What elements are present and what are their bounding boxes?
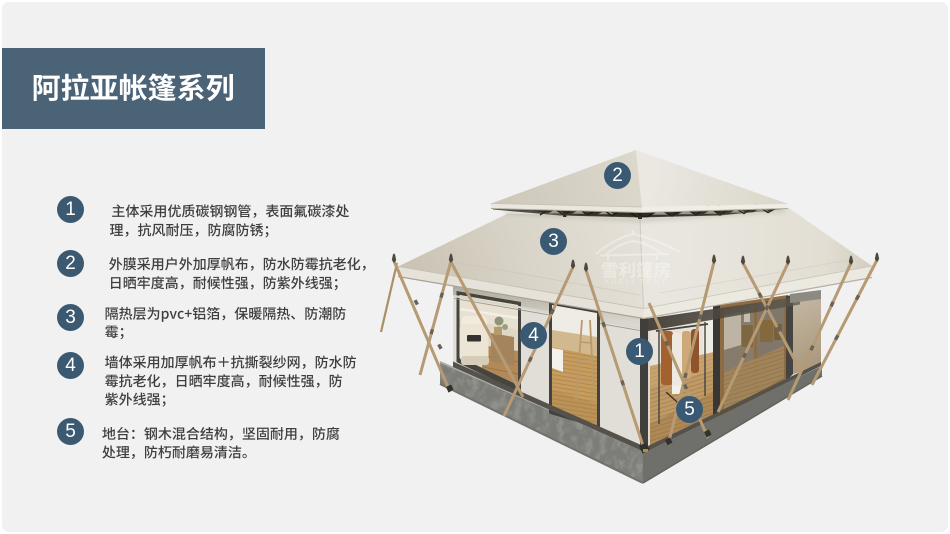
svg-text:XUELI TENT: XUELI TENT — [604, 277, 667, 286]
